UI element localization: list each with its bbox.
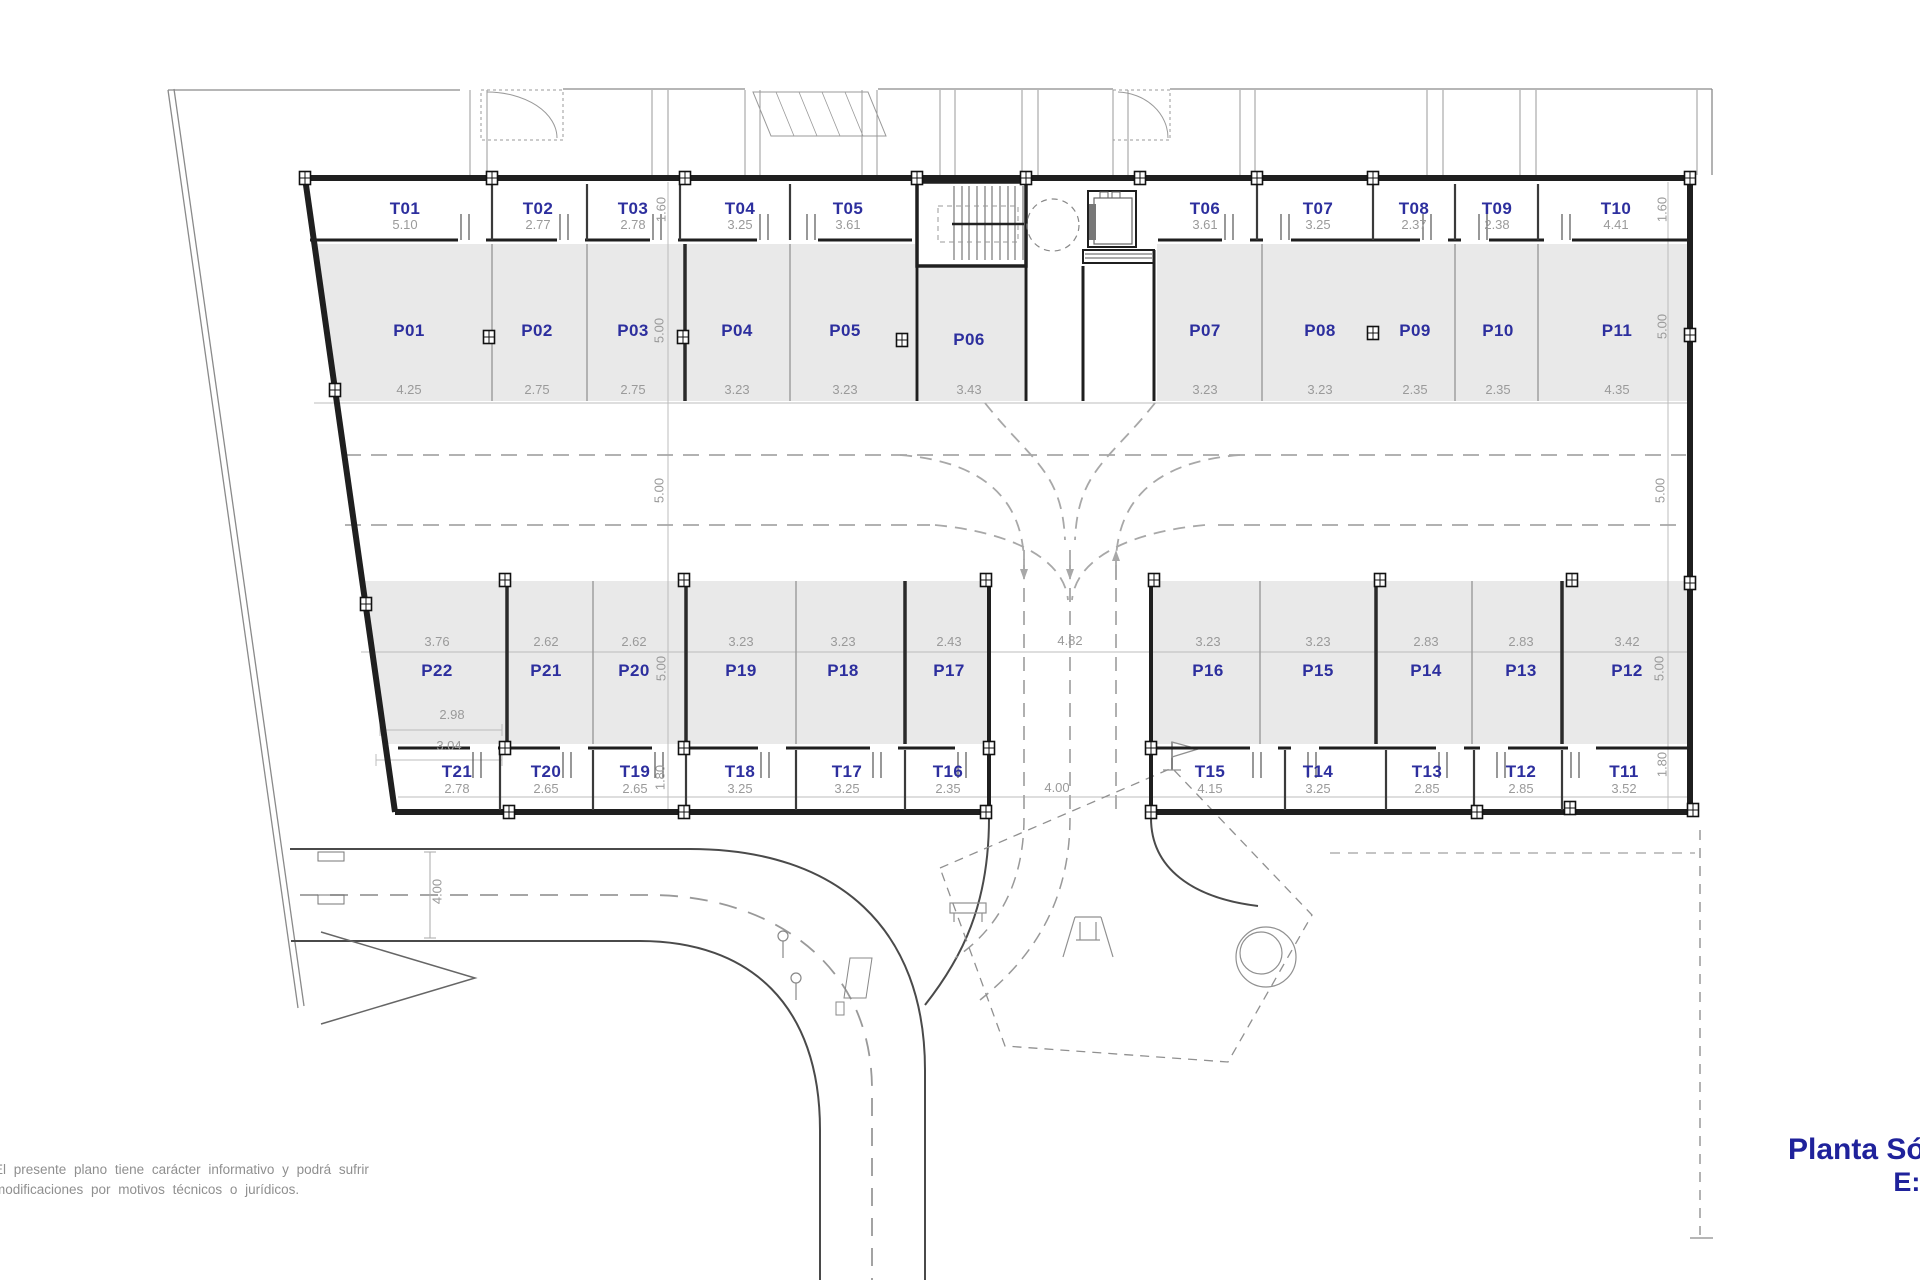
room-dim-P03: 2.75 bbox=[578, 382, 688, 397]
room-dim-T09: 2.38 bbox=[1442, 217, 1552, 232]
room-label-T16: T16 bbox=[893, 762, 1003, 782]
exterior-top-details bbox=[470, 90, 1697, 175]
room-label-T19: T19 bbox=[580, 762, 690, 782]
room-label-P13: P13 bbox=[1466, 661, 1576, 681]
room-label-P15: P15 bbox=[1263, 661, 1373, 681]
room-label-P22: P22 bbox=[382, 661, 492, 681]
room-label-T06: T06 bbox=[1150, 199, 1260, 219]
disclaimer-line-1: El presente plano tiene carácter informa… bbox=[0, 1160, 370, 1180]
turning-circle bbox=[1027, 199, 1079, 251]
dim-p22-depth: 2.98 bbox=[412, 707, 492, 722]
entrance-ramp bbox=[753, 92, 886, 136]
room-label-T02: T02 bbox=[483, 199, 593, 219]
room-dim-T01: 5.10 bbox=[350, 217, 460, 232]
ramp-arrow bbox=[321, 932, 475, 1024]
room-label-T05: T05 bbox=[793, 199, 903, 219]
tree-icon bbox=[1236, 927, 1296, 987]
dim-500-top-right: 5.00 bbox=[1655, 292, 1670, 362]
room-dim-T02: 2.77 bbox=[483, 217, 593, 232]
room-label-P08: P08 bbox=[1265, 321, 1375, 341]
room-label-P01: P01 bbox=[354, 321, 464, 341]
bench-icon bbox=[950, 903, 986, 922]
room-dim-T06: 3.61 bbox=[1150, 217, 1260, 232]
room-dim-P04: 3.23 bbox=[682, 382, 792, 397]
room-dim-T05: 3.61 bbox=[793, 217, 903, 232]
room-label-P10: P10 bbox=[1443, 321, 1553, 341]
room-dim-P06: 3.43 bbox=[914, 382, 1024, 397]
room-label-T04: T04 bbox=[685, 199, 795, 219]
room-label-T03: T03 bbox=[578, 199, 688, 219]
room-label-T07: T07 bbox=[1263, 199, 1373, 219]
room-dim-P18: 3.23 bbox=[788, 634, 898, 649]
room-dim-P16: 3.23 bbox=[1153, 634, 1263, 649]
room-dim-P01: 4.25 bbox=[354, 382, 464, 397]
room-label-T12: T12 bbox=[1466, 762, 1576, 782]
room-dim-P14: 2.83 bbox=[1371, 634, 1481, 649]
room-label-P02: P02 bbox=[482, 321, 592, 341]
dim-160-left: 1.60 bbox=[654, 175, 669, 245]
room-dim-P07: 3.23 bbox=[1150, 382, 1260, 397]
room-label-T14: T14 bbox=[1263, 762, 1373, 782]
room-label-P03: P03 bbox=[578, 321, 688, 341]
road-center-line bbox=[300, 895, 872, 1280]
room-dim-T17: 3.25 bbox=[792, 781, 902, 796]
dim-500-top-left: 5.00 bbox=[652, 296, 667, 366]
room-dim-P20: 2.62 bbox=[579, 634, 689, 649]
room-dim-T12: 2.85 bbox=[1466, 781, 1576, 796]
dim-160-right: 1.60 bbox=[1655, 175, 1670, 245]
room-label-P06: P06 bbox=[914, 330, 1024, 350]
room-dim-P17: 2.43 bbox=[894, 634, 1004, 649]
dim-ramp-exit: 4.00 bbox=[1017, 780, 1097, 795]
room-dim-P10: 2.35 bbox=[1443, 382, 1553, 397]
room-dim-T04: 3.25 bbox=[685, 217, 795, 232]
dim-500-aisle-left: 5.00 bbox=[652, 456, 667, 526]
room-label-T18: T18 bbox=[685, 762, 795, 782]
lane-arrow-down-2 bbox=[1066, 569, 1074, 580]
room-label-P04: P04 bbox=[682, 321, 792, 341]
room-dim-T19: 2.65 bbox=[580, 781, 690, 796]
room-dim-T03: 2.78 bbox=[578, 217, 688, 232]
plan-scale: E:1/150 bbox=[1738, 1166, 1920, 1198]
room-label-P14: P14 bbox=[1371, 661, 1481, 681]
room-label-P18: P18 bbox=[788, 661, 898, 681]
dim-500-bottom-right: 5.00 bbox=[1652, 634, 1667, 704]
disclaimer-note: El presente plano tiene carácter informa… bbox=[0, 1160, 370, 1200]
dim-500-aisle-right: 5.00 bbox=[1653, 456, 1668, 526]
dim-180-left: 1.80 bbox=[653, 743, 668, 813]
room-dim-T18: 3.25 bbox=[685, 781, 795, 796]
site-figures bbox=[778, 931, 872, 1015]
room-dim-P08: 3.23 bbox=[1265, 382, 1375, 397]
room-label-P16: P16 bbox=[1153, 661, 1263, 681]
elevator bbox=[1083, 191, 1154, 401]
room-label-P20: P20 bbox=[579, 661, 689, 681]
dim-500-bottom-left: 5.00 bbox=[654, 634, 669, 704]
lane-arrow-down-1 bbox=[1020, 569, 1028, 580]
room-label-T01: T01 bbox=[350, 199, 460, 219]
title-block: Planta Sótano E:1/150 bbox=[1738, 1134, 1920, 1198]
swing-icon bbox=[1063, 917, 1113, 957]
lane-arrow-up bbox=[1112, 550, 1120, 561]
floor-plan-canvas: T015.10T022.77T032.78T043.25T053.61T063.… bbox=[0, 0, 1920, 1280]
room-label-P05: P05 bbox=[790, 321, 900, 341]
room-label-P17: P17 bbox=[894, 661, 1004, 681]
room-dim-P19: 3.23 bbox=[686, 634, 796, 649]
room-label-T15: T15 bbox=[1155, 762, 1265, 782]
dim-t21-width: 3.04 bbox=[409, 738, 489, 753]
room-dim-T15: 4.15 bbox=[1155, 781, 1265, 796]
room-dim-T16: 2.35 bbox=[893, 781, 1003, 796]
room-dim-P15: 3.23 bbox=[1263, 634, 1373, 649]
room-label-P19: P19 bbox=[686, 661, 796, 681]
room-dim-T07: 3.25 bbox=[1263, 217, 1373, 232]
room-dim-T14: 3.25 bbox=[1263, 781, 1373, 796]
disclaimer-line-2: modificaciones por motivos técnicos o ju… bbox=[0, 1180, 370, 1200]
dim-ramp-width: 4.82 bbox=[1030, 633, 1110, 648]
room-dim-P05: 3.23 bbox=[790, 382, 900, 397]
room-dim-P02: 2.75 bbox=[482, 382, 592, 397]
dim-road-width: 4.00 bbox=[430, 857, 445, 927]
room-dim-P22: 3.76 bbox=[382, 634, 492, 649]
room-label-T17: T17 bbox=[792, 762, 902, 782]
room-label-P07: P07 bbox=[1150, 321, 1260, 341]
room-dim-P13: 2.83 bbox=[1466, 634, 1576, 649]
room-label-T09: T09 bbox=[1442, 199, 1552, 219]
door-swing-arc-left bbox=[487, 92, 557, 138]
dim-180-right: 1.80 bbox=[1655, 730, 1670, 800]
plan-title: Planta Sótano bbox=[1738, 1134, 1920, 1166]
room-dim-P11: 4.35 bbox=[1562, 382, 1672, 397]
door-swing-arc-right bbox=[1118, 92, 1168, 138]
